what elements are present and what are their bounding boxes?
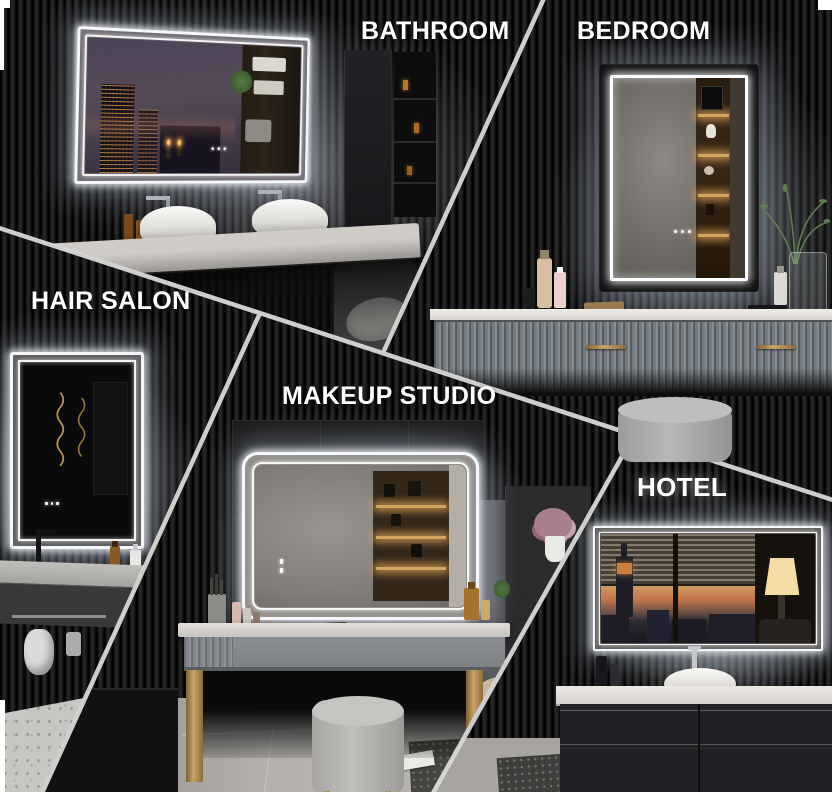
label-hair-salon: HAIR SALON [31, 287, 191, 316]
label-bedroom: BEDROOM [577, 17, 710, 46]
edge-chip [818, 0, 832, 10]
led-mirror-collage: BATHROOM BEDROOM HAIR SALON MAKEUP STUDI… [0, 0, 832, 798]
edge-chip [0, 700, 5, 798]
bottom-border [0, 792, 832, 798]
edge-chip [0, 0, 4, 70]
label-bathroom: BATHROOM [361, 17, 510, 46]
label-makeup-studio: MAKEUP STUDIO [282, 382, 496, 411]
ottoman-pouf [618, 402, 732, 462]
label-hotel: HOTEL [637, 472, 727, 503]
